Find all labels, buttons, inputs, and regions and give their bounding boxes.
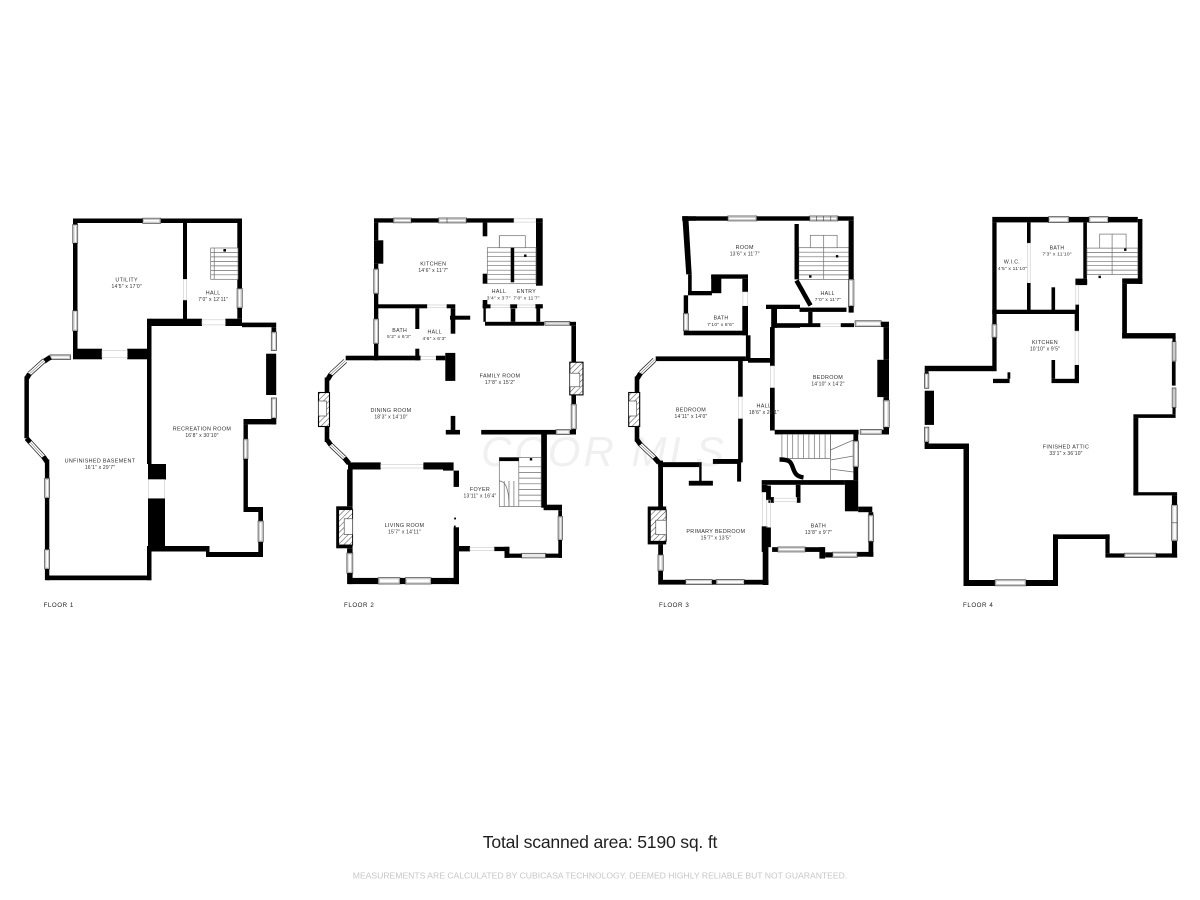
svg-text:HALL: HALL (757, 404, 772, 410)
svg-text:BATH: BATH (714, 315, 729, 321)
svg-text:15’7" x 14’11": 15’7" x 14’11" (388, 530, 421, 536)
svg-text:UTILITY: UTILITY (115, 278, 138, 284)
svg-text:15’7" x 13’5": 15’7" x 13’5" (701, 535, 731, 541)
svg-text:7’0" x 11’7": 7’0" x 11’7" (815, 297, 842, 303)
svg-text:16’1" x 29’7": 16’1" x 29’7" (85, 465, 115, 471)
svg-text:FOYER: FOYER (470, 487, 490, 493)
svg-text:HALL: HALL (206, 291, 221, 297)
svg-text:BEDROOM: BEDROOM (676, 408, 706, 414)
svg-text:BATH: BATH (392, 328, 407, 334)
svg-text:BEDROOM: BEDROOM (813, 375, 843, 381)
svg-text:BATH: BATH (811, 523, 826, 529)
svg-text:KITCHEN: KITCHEN (420, 262, 446, 268)
svg-text:13’8" x 9’7": 13’8" x 9’7" (805, 530, 832, 536)
svg-text:PRIMARY BEDROOM: PRIMARY BEDROOM (686, 529, 745, 535)
svg-text:4’5" x 11’10": 4’5" x 11’10" (998, 266, 1027, 272)
svg-text:16’8" x 30’10": 16’8" x 30’10" (185, 433, 218, 439)
svg-text:LIVING ROOM: LIVING ROOM (385, 523, 425, 529)
svg-text:FINISHED ATTIC: FINISHED ATTIC (1043, 444, 1089, 450)
svg-text:14’10" x 14’2": 14’10" x 14’2" (811, 382, 844, 388)
svg-text:18’3" x 14’10": 18’3" x 14’10" (374, 415, 407, 421)
svg-text:FLOOR 3: FLOOR 3 (659, 602, 689, 609)
svg-text:HALL: HALL (492, 289, 506, 295)
svg-text:DINING ROOM: DINING ROOM (371, 408, 412, 414)
svg-text:ROOM: ROOM (736, 245, 754, 251)
svg-text:FLOOR 4: FLOOR 4 (963, 602, 993, 609)
svg-text:4’6" x 6’3": 4’6" x 6’3" (422, 336, 446, 342)
svg-text:33’1" x 36’10": 33’1" x 36’10" (1049, 451, 1082, 457)
svg-text:13’11" x 16’4": 13’11" x 16’4" (464, 493, 497, 499)
svg-text:5’2" x 6’3": 5’2" x 6’3" (387, 334, 411, 340)
svg-text:14’5" x 17’0": 14’5" x 17’0" (112, 284, 142, 290)
svg-text:7’0" x 11’7": 7’0" x 11’7" (513, 296, 540, 302)
svg-text:7’0" x 12’11": 7’0" x 12’11" (198, 297, 228, 303)
svg-text:W.I.C.: W.I.C. (1004, 259, 1020, 265)
svg-text:10’10" x 9’5": 10’10" x 9’5" (1030, 347, 1060, 353)
svg-text:FLOOR 2: FLOOR 2 (344, 602, 374, 609)
svg-text:HALL: HALL (428, 329, 442, 335)
svg-text:14’6" x 11’7": 14’6" x 11’7" (418, 268, 448, 274)
svg-text:ENTRY: ENTRY (517, 289, 536, 295)
svg-text:HALL: HALL (821, 291, 835, 297)
svg-text:18’6" x 22’1": 18’6" x 22’1" (749, 410, 779, 416)
svg-text:RECREATION ROOM: RECREATION ROOM (173, 427, 232, 433)
svg-text:UNFINISHED BASEMENT: UNFINISHED BASEMENT (65, 459, 136, 465)
svg-text:FAMILY ROOM: FAMILY ROOM (480, 374, 521, 380)
svg-text:7’10" x 8’6": 7’10" x 8’6" (707, 322, 734, 328)
svg-text:KITCHEN: KITCHEN (1032, 340, 1058, 346)
svg-text:3’4" x 3’7": 3’4" x 3’7" (487, 296, 511, 302)
svg-text:13’6" x 11’7": 13’6" x 11’7" (730, 252, 760, 258)
svg-text:17’8" x 15’2": 17’8" x 15’2" (485, 380, 515, 386)
svg-text:MEASUREMENTS ARE CALCULATED BY: MEASUREMENTS ARE CALCULATED BY CUBICASA … (353, 871, 847, 881)
svg-text:BATH: BATH (1050, 245, 1065, 251)
svg-text:14’11" x 14’0": 14’11" x 14’0" (675, 414, 708, 420)
svg-text:FLOOR 1: FLOOR 1 (44, 602, 74, 609)
svg-text:Total scanned area: 5190 sq. f: Total scanned area: 5190 sq. ft (483, 832, 718, 852)
svg-text:7’3" x 11’10": 7’3" x 11’10" (1042, 252, 1071, 258)
